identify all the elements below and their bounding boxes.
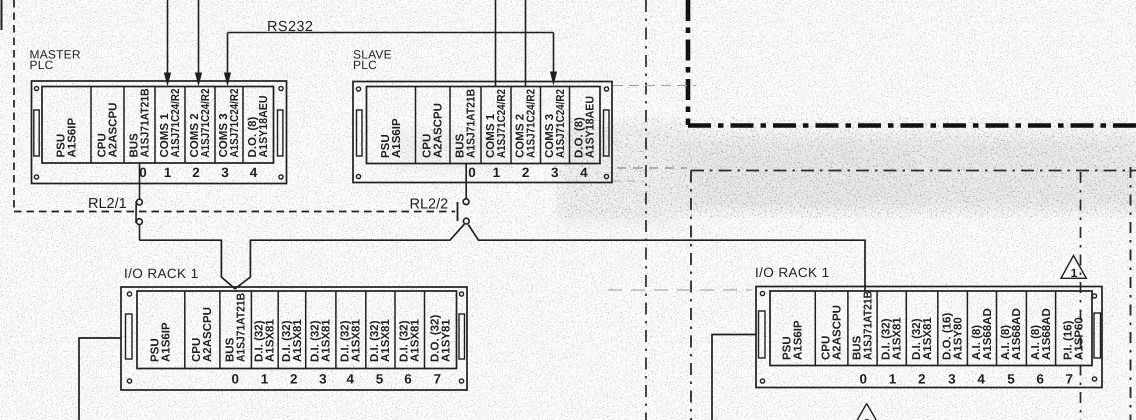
svg-text:A1S68AD: A1S68AD xyxy=(1011,308,1023,360)
svg-text:1: 1 xyxy=(493,165,501,180)
svg-text:A1SJ71AT21B: A1SJ71AT21B xyxy=(139,89,151,158)
svg-text:A1SP60: A1SP60 xyxy=(1074,317,1086,360)
svg-text:7: 7 xyxy=(1066,372,1074,387)
svg-text:A1SJ71AT21B: A1SJ71AT21B xyxy=(862,291,874,360)
svg-text:2: 2 xyxy=(918,372,926,387)
svg-text:2: 2 xyxy=(290,372,298,387)
svg-text:A1SX81: A1SX81 xyxy=(410,319,422,362)
svg-text:A2ASCPU: A2ASCPU xyxy=(433,103,445,158)
svg-text:7: 7 xyxy=(433,372,441,387)
svg-text:A2ASCPU: A2ASCPU xyxy=(202,307,214,362)
svg-text:0: 0 xyxy=(232,372,240,387)
svg-text:A1SJ71C24/R2: A1SJ71C24/R2 xyxy=(526,89,538,158)
svg-text:5: 5 xyxy=(376,372,384,387)
svg-text:A1SJ71AT21B: A1SJ71AT21B xyxy=(236,293,248,362)
svg-text:A1SX81: A1SX81 xyxy=(380,319,392,362)
svg-text:I/O RACK 1: I/O RACK 1 xyxy=(124,266,199,281)
svg-text:A1S68AD: A1S68AD xyxy=(982,308,994,360)
svg-text:A2ASCPU: A2ASCPU xyxy=(107,103,119,158)
svg-text:A1SX81: A1SX81 xyxy=(892,317,904,360)
svg-text:0: 0 xyxy=(860,372,868,387)
svg-text:A1S6IP: A1S6IP xyxy=(161,322,173,362)
svg-text:A1SY81: A1SY81 xyxy=(440,319,452,362)
svg-text:A1SY18AEU: A1SY18AEU xyxy=(258,96,270,158)
svg-text:I/O RACK 1: I/O RACK 1 xyxy=(755,265,830,280)
svg-text:6: 6 xyxy=(1036,372,1044,387)
svg-text:4: 4 xyxy=(250,165,258,180)
svg-text:1: 1 xyxy=(889,372,897,387)
svg-text:A1SJ71AT21B: A1SJ71AT21B xyxy=(465,89,477,158)
svg-text:A1SX81: A1SX81 xyxy=(922,317,934,360)
svg-text:6: 6 xyxy=(404,372,412,387)
svg-text:A1S6IP: A1S6IP xyxy=(792,320,804,360)
svg-text:RL2/1: RL2/1 xyxy=(88,196,127,212)
svg-text:RS232: RS232 xyxy=(267,19,313,35)
svg-text:A1SJ71C24/R2: A1SJ71C24/R2 xyxy=(229,89,241,158)
svg-text:1: 1 xyxy=(1071,266,1078,280)
svg-text:3: 3 xyxy=(948,372,956,387)
svg-text:1: 1 xyxy=(261,372,269,387)
svg-text:A1SX81: A1SX81 xyxy=(321,319,333,362)
svg-text:PLC: PLC xyxy=(353,58,377,72)
svg-text:3: 3 xyxy=(221,165,229,180)
svg-text:3: 3 xyxy=(551,165,559,180)
svg-text:0: 0 xyxy=(468,165,476,180)
svg-text:PLC: PLC xyxy=(30,58,54,72)
svg-text:4: 4 xyxy=(580,165,588,180)
svg-text:A1SJ71C24/R2: A1SJ71C24/R2 xyxy=(200,89,212,158)
svg-text:4: 4 xyxy=(977,372,985,387)
svg-text:A1SJ71C24/R2: A1SJ71C24/R2 xyxy=(555,89,567,158)
svg-text:A1S6IP: A1S6IP xyxy=(66,118,78,158)
svg-text:2: 2 xyxy=(522,165,530,180)
svg-text:A1SX81: A1SX81 xyxy=(351,319,363,362)
svg-text:4: 4 xyxy=(347,372,355,387)
svg-text:1: 1 xyxy=(164,165,172,180)
svg-text:A1S68AD: A1S68AD xyxy=(1041,308,1053,360)
svg-text:A1SX81: A1SX81 xyxy=(265,319,277,362)
svg-text:0: 0 xyxy=(139,165,147,180)
svg-text:A1SY18AEU: A1SY18AEU xyxy=(585,96,597,158)
svg-text:RL2/2: RL2/2 xyxy=(410,196,449,212)
svg-text:A1SY80: A1SY80 xyxy=(952,317,964,360)
svg-text:3: 3 xyxy=(319,372,327,387)
svg-text:A1S6IP: A1S6IP xyxy=(391,118,403,158)
svg-text:A2ASCPU: A2ASCPU xyxy=(831,305,843,360)
svg-text:2: 2 xyxy=(192,165,200,180)
svg-text:A1SJ71C24/R2: A1SJ71C24/R2 xyxy=(496,89,508,158)
svg-text:A1SX81: A1SX81 xyxy=(292,319,304,362)
svg-text:5: 5 xyxy=(1007,372,1015,387)
svg-text:A1SJ71C24/R2: A1SJ71C24/R2 xyxy=(170,89,182,158)
